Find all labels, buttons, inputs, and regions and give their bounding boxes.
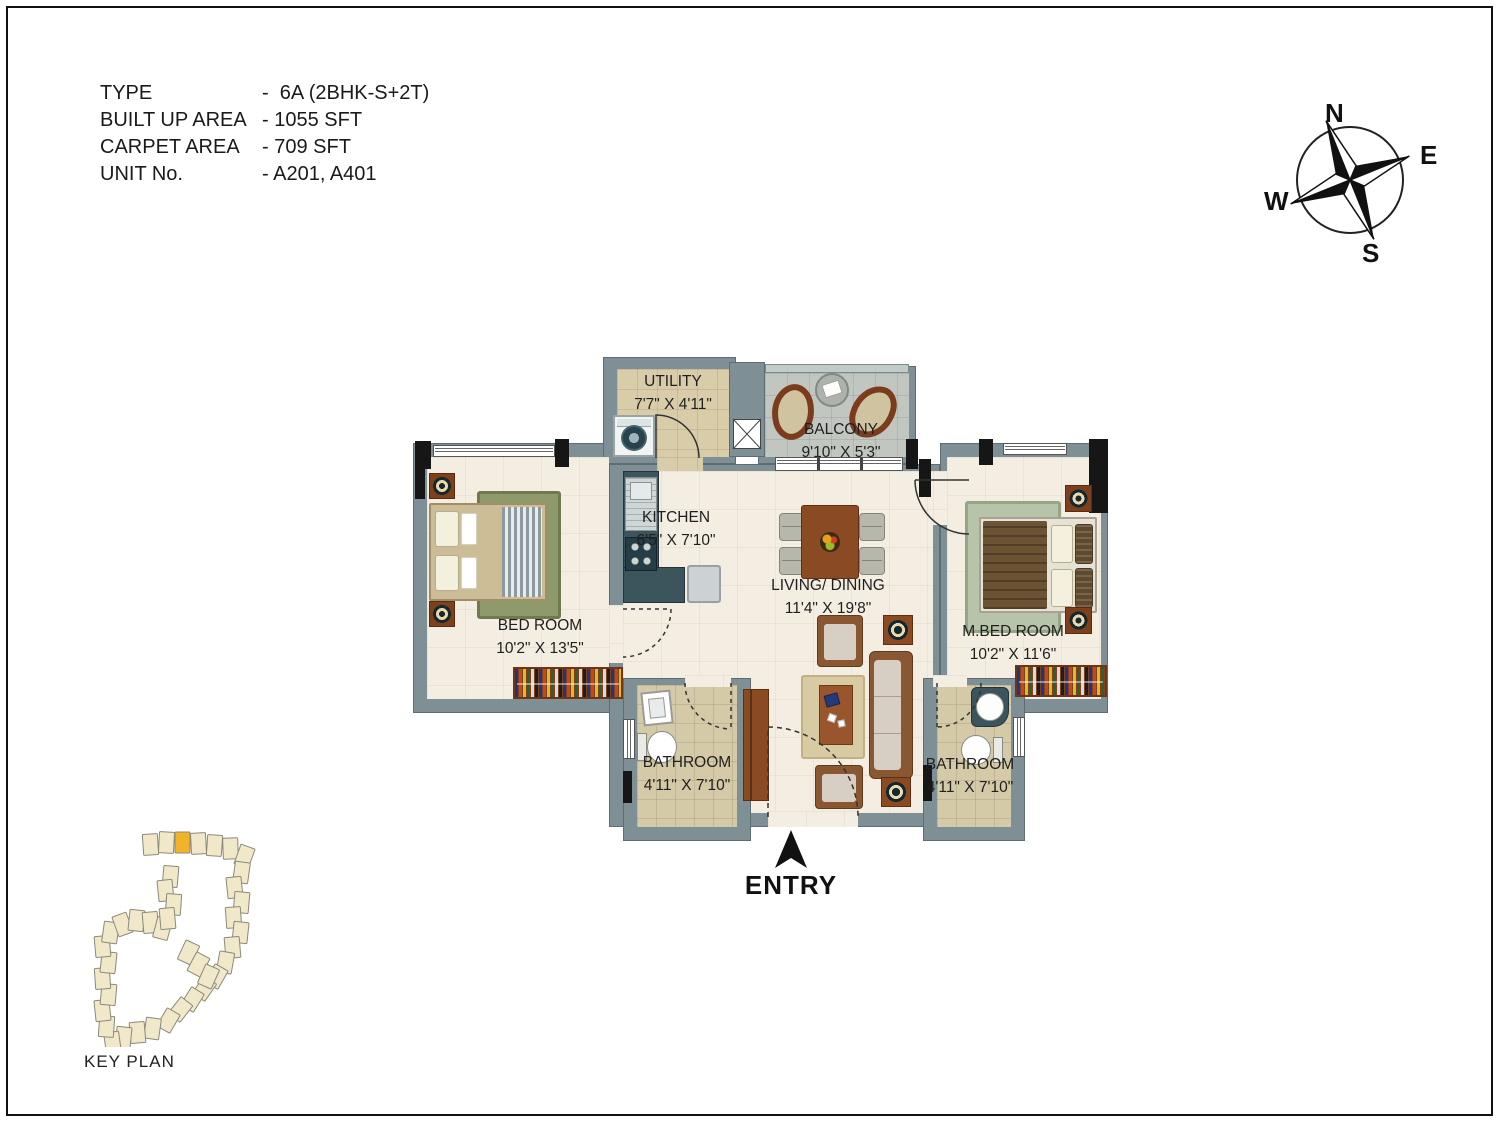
entry-door-opening <box>768 811 858 827</box>
info-label: UNIT No. <box>100 161 262 188</box>
corner-block <box>919 459 931 497</box>
apartment-floor-plan: UTILITY7'7" X 4'11" BALCONY9'10" X 5'3" … <box>413 353 1115 835</box>
kitchen-label: KITCHEN6'5" X 7'10" <box>637 506 716 553</box>
bedroom-door-opening <box>609 605 623 663</box>
compass-west-label: W <box>1264 186 1289 216</box>
bed-pillow <box>1075 568 1093 608</box>
key-plan-building <box>159 907 176 929</box>
bathroom2-door-opening <box>933 675 967 687</box>
bedroom-window <box>433 445 555 457</box>
key-plan-highlighted-unit <box>175 832 190 853</box>
info-label: CARPET AREA <box>100 134 262 161</box>
armchair <box>817 615 863 667</box>
bed-pillow <box>1075 524 1093 564</box>
bedside-table-lamp <box>1065 485 1092 512</box>
master-bedroom-window <box>1003 443 1067 455</box>
bedroom-label: BED ROOM10'2" X 13'5" <box>496 614 584 661</box>
corner-stand <box>881 777 911 807</box>
corner-block <box>623 771 632 803</box>
bed-pillow <box>435 555 459 591</box>
corner-block <box>415 465 425 499</box>
info-row-type: TYPE - 6A (2BHK-S+2T) <box>100 80 429 107</box>
master-bedroom-label: M.BED ROOM10'2" X 11'6" <box>962 620 1064 667</box>
double-bed <box>429 503 547 601</box>
balcony-label: BALCONY9'10" X 5'3" <box>802 418 881 465</box>
living-dining-label: LIVING/ DINING11'4" X 19'8" <box>771 574 885 621</box>
key-plan-building <box>158 832 174 854</box>
info-value: - 6A (2BHK-S+2T) <box>262 80 429 107</box>
master-double-bed <box>979 517 1097 613</box>
table-papers <box>827 713 837 723</box>
key-plan-building <box>144 1017 162 1040</box>
info-label: BUILT UP AREA <box>100 107 262 134</box>
master-bedroom-door-opening <box>933 471 947 525</box>
kitchen-counter <box>623 567 685 603</box>
bathroom1-door-opening <box>685 675 731 687</box>
balcony-railing <box>765 364 909 373</box>
info-value: - 709 SFT <box>262 134 351 161</box>
sofa <box>869 651 913 779</box>
corner-block <box>555 439 569 467</box>
bedside-table-lamp <box>1065 607 1092 634</box>
key-plan-building <box>190 833 206 855</box>
info-row-carpet: CARPET AREA - 709 SFT <box>100 134 429 161</box>
compass-rose-icon: N E S W <box>1262 92 1442 267</box>
bathroom2-label: BATHROOM4'11" X 7'10" <box>926 753 1014 800</box>
washing-machine <box>613 415 655 457</box>
key-plan-building <box>206 835 222 857</box>
coffee-table <box>819 685 853 745</box>
info-value: - 1055 SFT <box>262 107 362 134</box>
dining-chair <box>859 513 885 541</box>
compass-east-label: E <box>1420 140 1437 170</box>
dining-table <box>801 505 859 579</box>
info-value: - A201, A401 <box>262 161 377 188</box>
bedside-table-lamp <box>429 601 455 627</box>
washbasin <box>640 690 673 727</box>
info-row-unitno: UNIT No. - A201, A401 <box>100 161 429 188</box>
corner-block <box>979 439 993 465</box>
entry-arrow-icon <box>769 830 813 875</box>
bed-pillow <box>435 511 459 547</box>
bed-blanket <box>983 521 1047 609</box>
unit-info-block: TYPE - 6A (2BHK-S+2T) BUILT UP AREA - 10… <box>100 80 429 188</box>
info-row-builtup: BUILT UP AREA - 1055 SFT <box>100 107 429 134</box>
table-papers <box>837 719 845 727</box>
bed-pillow <box>1051 525 1073 563</box>
master-wardrobe <box>1015 665 1107 697</box>
table-books <box>824 692 841 707</box>
floor-plan-page: TYPE - 6A (2BHK-S+2T) BUILT UP AREA - 10… <box>0 0 1499 1122</box>
duct-shaft <box>733 419 761 449</box>
bathroom1-label: BATHROOM4'11" X 7'10" <box>643 751 731 798</box>
corner-washbasin <box>971 687 1009 727</box>
bed-pillow <box>1051 569 1073 607</box>
utility-door-opening <box>657 457 703 471</box>
bed-sheet <box>461 513 477 545</box>
corner-block <box>906 439 918 469</box>
dining-chair <box>859 547 885 575</box>
compass-south-label: S <box>1362 238 1379 267</box>
utility-label: UTILITY7'7" X 4'11" <box>634 370 712 417</box>
armchair <box>815 765 863 809</box>
key-plan-building <box>223 838 239 860</box>
key-plan-building <box>142 834 158 856</box>
corner-stand <box>883 615 913 645</box>
bathroom1-window <box>623 719 635 759</box>
bedside-table-lamp <box>429 473 455 499</box>
bedroom-wardrobe <box>513 667 623 699</box>
compass-north-label: N <box>1325 98 1344 128</box>
balcony-table <box>815 373 849 407</box>
bed-sheet <box>461 557 477 589</box>
entry-cabinet <box>743 689 769 801</box>
key-plan-label: KEY PLAN <box>84 1052 175 1072</box>
key-plan-map <box>85 822 295 1052</box>
refrigerator <box>687 565 721 603</box>
fruit-bowl <box>820 532 840 552</box>
bathroom2-window <box>1013 717 1025 757</box>
bed-blanket <box>502 507 542 597</box>
info-label: TYPE <box>100 80 262 107</box>
